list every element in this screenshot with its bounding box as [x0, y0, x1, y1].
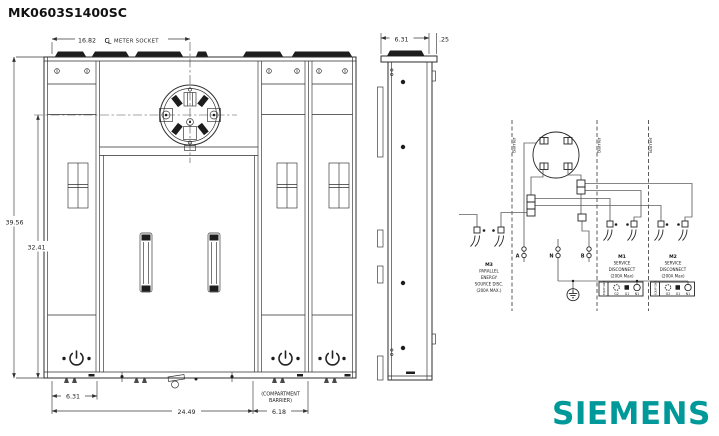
m1-line3: (200A Max) [610, 274, 633, 279]
right-column-2 [312, 69, 353, 377]
dim-bottom-left-value: 6.31 [66, 394, 80, 401]
test-point-a: A [516, 247, 527, 260]
test-point-n: N [549, 247, 560, 260]
g2-label-1: G2 [614, 292, 619, 296]
equip-gnd-label-1: EQUIP GND [602, 281, 606, 295]
power-symbol [62, 351, 90, 365]
drawing-canvas: MK0603S1400SC [0, 0, 719, 436]
hinge-plates [378, 87, 384, 380]
centerlines [34, 42, 237, 163]
siemens-logo: SIEMENS [552, 396, 711, 432]
terminal-stack-left [527, 195, 535, 216]
right-column-1 [262, 69, 306, 377]
m1-name: M1 [618, 254, 626, 260]
door-latch[interactable] [168, 375, 198, 389]
dim-bottom: 6.31 24.49 6.18 (COMPARTMENT BARRIER) [52, 381, 308, 416]
wiring-schematic: Barrier Barrier Barrier [459, 120, 695, 311]
schematic-wires [459, 143, 692, 289]
m2-disconnect: M2 SERVICE DISCONNECT (200A Max) [655, 221, 689, 279]
dim-height-inner-value: 32.41 [27, 245, 45, 252]
screws [317, 69, 348, 74]
g2-label-2: G2 [666, 292, 671, 296]
barrier-label-1: Barrier [512, 137, 518, 153]
centerline-symbol-l: L [108, 39, 112, 46]
dim-bottom-center-value: 24.49 [177, 409, 195, 416]
m3-line3: SOURCE DISC. [475, 282, 504, 287]
power-symbol [318, 351, 345, 365]
dim-height-inner: 32.41 [23, 115, 50, 378]
m3-line1: PARALLEL [479, 269, 499, 274]
door-handle-right[interactable] [208, 233, 220, 292]
dim-height-total-value: 39.56 [5, 220, 23, 227]
vent-grille [277, 163, 297, 208]
left-column [48, 69, 97, 377]
side-view [378, 51, 438, 381]
dim-bottom-right-value: 6.18 [272, 409, 286, 416]
dim-top-label: METER SOCKET [114, 39, 159, 45]
door-handle-left[interactable] [140, 233, 152, 292]
center-door [100, 147, 259, 388]
screws [267, 69, 300, 74]
dim-side-flange-value: .25 [439, 37, 449, 44]
m3-line4: (200A MAX.) [477, 288, 502, 293]
front-view [34, 42, 356, 388]
vent-grille [329, 163, 349, 208]
m2-line3: (200A Max) [661, 274, 684, 279]
m3-line2: ENERGY [481, 275, 498, 280]
m1-line1: SERVICE [614, 261, 631, 266]
schematic-meter [533, 132, 579, 178]
g1-label-1: G1 [625, 292, 630, 296]
n1-label-1: N1 [635, 292, 639, 296]
barrier-label-2: Barrier [597, 137, 603, 153]
page-title: MK0603S1400SC [8, 5, 127, 20]
screws [55, 69, 90, 74]
m3-disconnect: M3 PARALLEL ENERGY SOURCE DISC. (200A MA… [471, 227, 505, 293]
mounting-feet [64, 379, 337, 384]
power-symbol [271, 351, 299, 365]
ground-symbol [567, 289, 579, 301]
equip-gnd-label-2: EQUIP GND [654, 281, 658, 295]
m1-disconnect: M1 SERVICE DISCONNECT (200A Max) [604, 221, 638, 279]
top-caps [55, 52, 352, 57]
vent-grille [68, 163, 88, 208]
dim-top-value: 16.82 [78, 38, 96, 45]
spec-sheet: MK0603S1400SC [0, 0, 719, 436]
dim-height-total: 39.56 [1, 57, 44, 378]
m2-line1: SERVICE [665, 261, 682, 266]
terminal-strip-1: EQUIP GND G2 G1 N1 [599, 281, 643, 296]
terminal-stack-right [577, 180, 586, 221]
m3-name: M3 [485, 262, 493, 268]
m2-line2: DISCONNECT [660, 267, 687, 272]
test-point-b: B [581, 247, 592, 260]
compartment-note-line2: BARRIER) [269, 398, 292, 404]
m1-line2: DISCONNECT [609, 267, 636, 272]
m2-name: M2 [669, 254, 677, 260]
dim-top-width: 16.82 C L METER SOCKET [52, 35, 190, 55]
side-screws [391, 69, 406, 356]
neutral-label: N [549, 254, 553, 260]
g1-label-2: G1 [676, 292, 681, 296]
n1-label-2: N1 [686, 292, 690, 296]
phase-b-label: B [581, 254, 585, 260]
compartment-note-line1: (COMPARTMENT [261, 392, 300, 398]
phase-a-label: A [516, 254, 520, 260]
barrier-label-3: Barrier [648, 137, 654, 153]
dim-side-width-value: 6.31 [394, 37, 408, 44]
